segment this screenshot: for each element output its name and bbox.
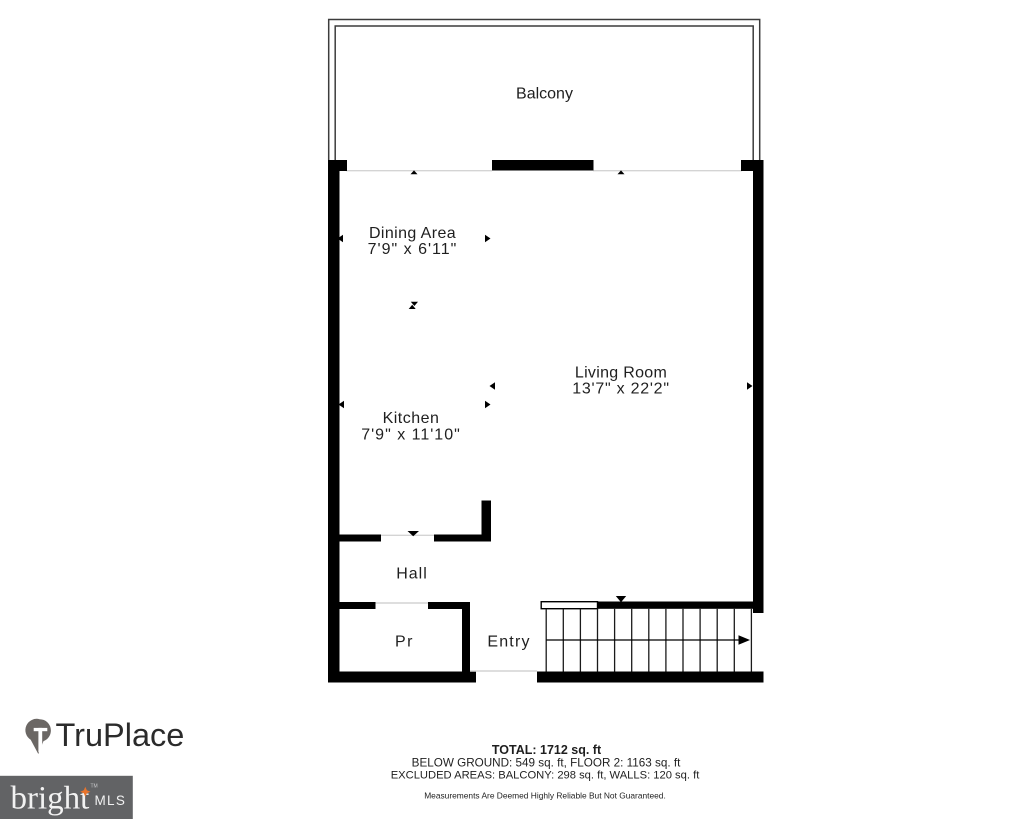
svg-text:Kitchen: Kitchen [383, 410, 440, 427]
svg-text:bright: bright [11, 781, 90, 817]
svg-text:Pr: Pr [395, 634, 414, 651]
svg-text:TOTAL: 1712 sq. ft: TOTAL: 1712 sq. ft [492, 743, 602, 757]
svg-text:Hall: Hall [396, 566, 428, 583]
svg-text:7'9" x 6'11": 7'9" x 6'11" [368, 241, 458, 258]
svg-text:Measurements Are Deemed Highly: Measurements Are Deemed Highly Reliable … [424, 791, 666, 801]
svg-text:BELOW GROUND: 549 sq. ft, FLOO: BELOW GROUND: 549 sq. ft, FLOOR 2: 1163 … [412, 757, 681, 770]
svg-text:EXCLUDED AREAS: BALCONY: 298 s: EXCLUDED AREAS: BALCONY: 298 sq. ft, WAL… [391, 770, 701, 782]
svg-text:Living Room: Living Room [575, 365, 667, 382]
svg-text:TM: TM [91, 784, 98, 790]
svg-text:Dining Area: Dining Area [369, 225, 456, 242]
svg-text:7'9" x 11'10": 7'9" x 11'10" [361, 427, 461, 444]
svg-text:TruPlace: TruPlace [56, 717, 185, 753]
svg-text:Entry: Entry [487, 634, 530, 651]
svg-text:13'7" x 22'2": 13'7" x 22'2" [572, 381, 670, 398]
svg-text:Balcony: Balcony [516, 86, 573, 103]
svg-text:MLS: MLS [95, 793, 127, 808]
